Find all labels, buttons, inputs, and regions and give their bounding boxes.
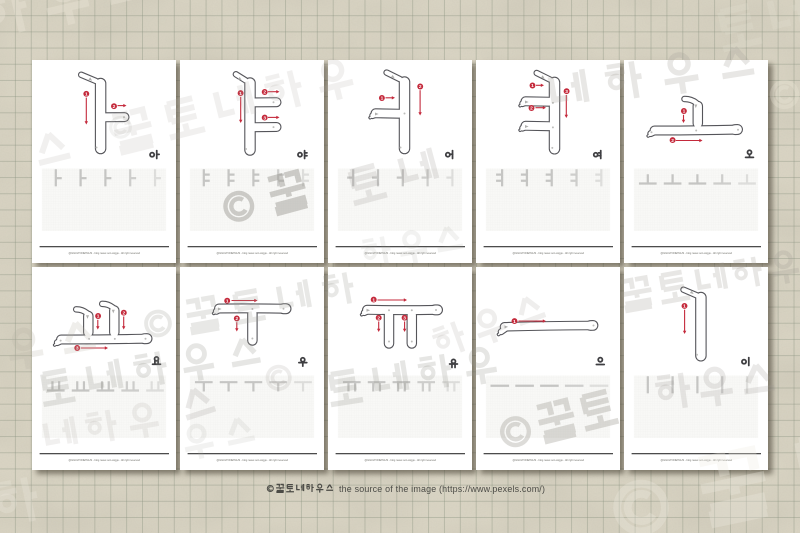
svg-text:@GGULTONEHAUS - blog naver-son: @GGULTONEHAUS - blog naver-son-wiggu - A… (661, 251, 733, 255)
svg-text:1: 1 (85, 91, 88, 97)
svg-text:2: 2 (122, 310, 125, 316)
svg-text:1: 1 (381, 96, 384, 102)
svg-text:1: 1 (683, 109, 686, 115)
svg-text:@GGULTONEHAUS - blog naver-son: @GGULTONEHAUS - blog naver-son-wiggu - A… (365, 458, 437, 462)
svg-text:@GGULTONEHAUS - blog naver-son: @GGULTONEHAUS - blog naver-son-wiggu - A… (365, 251, 437, 255)
svg-text:1: 1 (372, 297, 375, 303)
svg-text:@GGULTONEHAUS - blog naver-son: @GGULTONEHAUS - blog naver-son-wiggu - A… (217, 458, 289, 462)
svg-text:1: 1 (513, 319, 516, 325)
svg-text:3: 3 (403, 315, 406, 321)
svg-text:2: 2 (113, 104, 116, 110)
svg-text:2: 2 (377, 315, 380, 321)
svg-text:1: 1 (531, 83, 534, 89)
svg-text:2: 2 (263, 90, 266, 96)
svg-text:the source of the image (https: the source of the image (https://www.pex… (339, 484, 545, 494)
svg-text:2: 2 (235, 316, 238, 322)
svg-text:3: 3 (565, 89, 568, 95)
svg-text:1: 1 (97, 314, 100, 320)
svg-text:2: 2 (671, 138, 674, 144)
svg-text:1: 1 (239, 91, 242, 97)
svg-text:1: 1 (226, 298, 229, 304)
svg-text:@GGULTONEHAUS - blog naver-son: @GGULTONEHAUS - blog naver-son-wiggu - A… (513, 458, 585, 462)
svg-text:2: 2 (419, 84, 422, 90)
svg-text:2: 2 (530, 106, 533, 112)
svg-text:@GGULTONEHAUS - blog naver-son: @GGULTONEHAUS - blog naver-son-wiggu - A… (69, 251, 141, 255)
svg-text:@GGULTONEHAUS - blog naver-son: @GGULTONEHAUS - blog naver-son-wiggu - A… (217, 251, 289, 255)
svg-text:@GGULTONEHAUS - blog naver-son: @GGULTONEHAUS - blog naver-son-wiggu - A… (661, 458, 733, 462)
svg-text:@GGULTONEHAUS - blog naver-son: @GGULTONEHAUS - blog naver-son-wiggu - A… (513, 251, 585, 255)
svg-text:@GGULTONEHAUS - blog naver-son: @GGULTONEHAUS - blog naver-son-wiggu - A… (69, 458, 141, 462)
svg-text:3: 3 (76, 346, 79, 352)
svg-text:3: 3 (263, 115, 266, 121)
svg-text:1: 1 (683, 304, 686, 310)
